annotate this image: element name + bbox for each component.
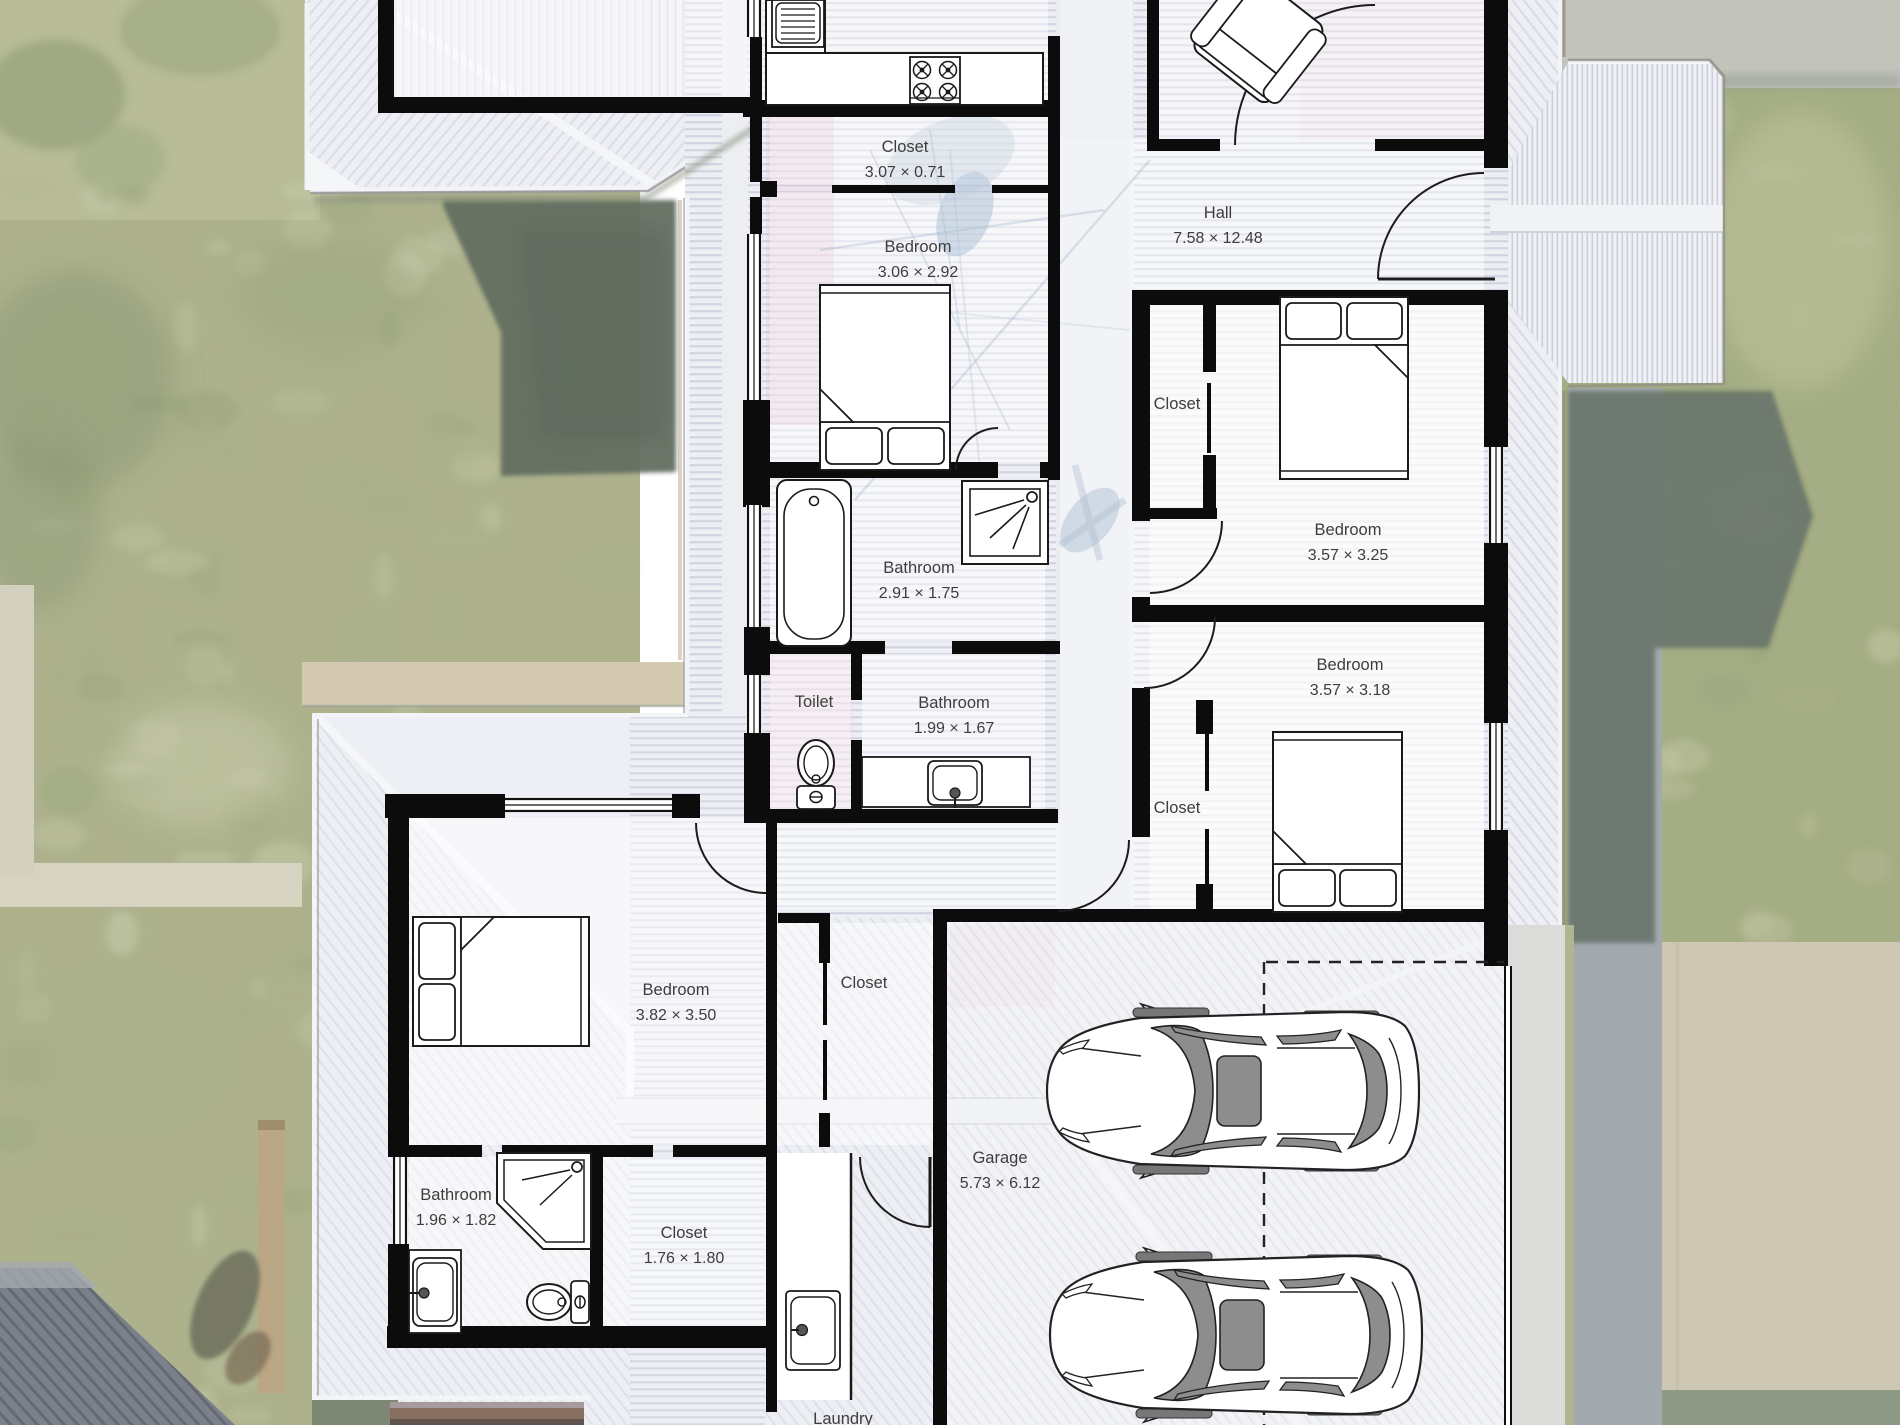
svg-text:Closet: Closet xyxy=(882,138,929,156)
svg-text:Bedroom: Bedroom xyxy=(1315,521,1382,539)
svg-text:Closet: Closet xyxy=(841,974,888,992)
svg-text:Closet: Closet xyxy=(1154,799,1201,817)
svg-text:1.76 × 1.80: 1.76 × 1.80 xyxy=(644,1250,725,1267)
svg-text:2.91 × 1.75: 2.91 × 1.75 xyxy=(879,585,960,602)
svg-text:Hall: Hall xyxy=(1204,204,1232,222)
svg-text:5.73 × 6.12: 5.73 × 6.12 xyxy=(960,1175,1041,1192)
svg-text:Bedroom: Bedroom xyxy=(885,238,952,256)
svg-text:3.07 × 0.71: 3.07 × 0.71 xyxy=(865,164,946,181)
svg-text:1.96 × 1.82: 1.96 × 1.82 xyxy=(416,1212,497,1229)
svg-text:Bathroom: Bathroom xyxy=(883,559,955,577)
svg-text:1.99 × 1.67: 1.99 × 1.67 xyxy=(914,720,995,737)
svg-text:Bathroom: Bathroom xyxy=(420,1186,492,1204)
svg-text:3.57 × 3.18: 3.57 × 3.18 xyxy=(1310,682,1391,699)
svg-text:Bedroom: Bedroom xyxy=(643,981,710,999)
svg-text:7.58 × 12.48: 7.58 × 12.48 xyxy=(1173,230,1263,247)
svg-text:Toilet: Toilet xyxy=(795,693,834,711)
svg-text:Closet: Closet xyxy=(661,1224,708,1242)
svg-text:Laundry: Laundry xyxy=(813,1410,873,1425)
svg-text:Bedroom: Bedroom xyxy=(1317,656,1384,674)
svg-text:3.57 × 3.25: 3.57 × 3.25 xyxy=(1308,547,1389,564)
svg-text:3.82 × 3.50: 3.82 × 3.50 xyxy=(636,1007,717,1024)
svg-text:Closet: Closet xyxy=(1154,395,1201,413)
svg-text:Bathroom: Bathroom xyxy=(918,694,990,712)
svg-text:3.06 × 2.92: 3.06 × 2.92 xyxy=(878,264,959,281)
svg-text:Garage: Garage xyxy=(972,1149,1027,1167)
